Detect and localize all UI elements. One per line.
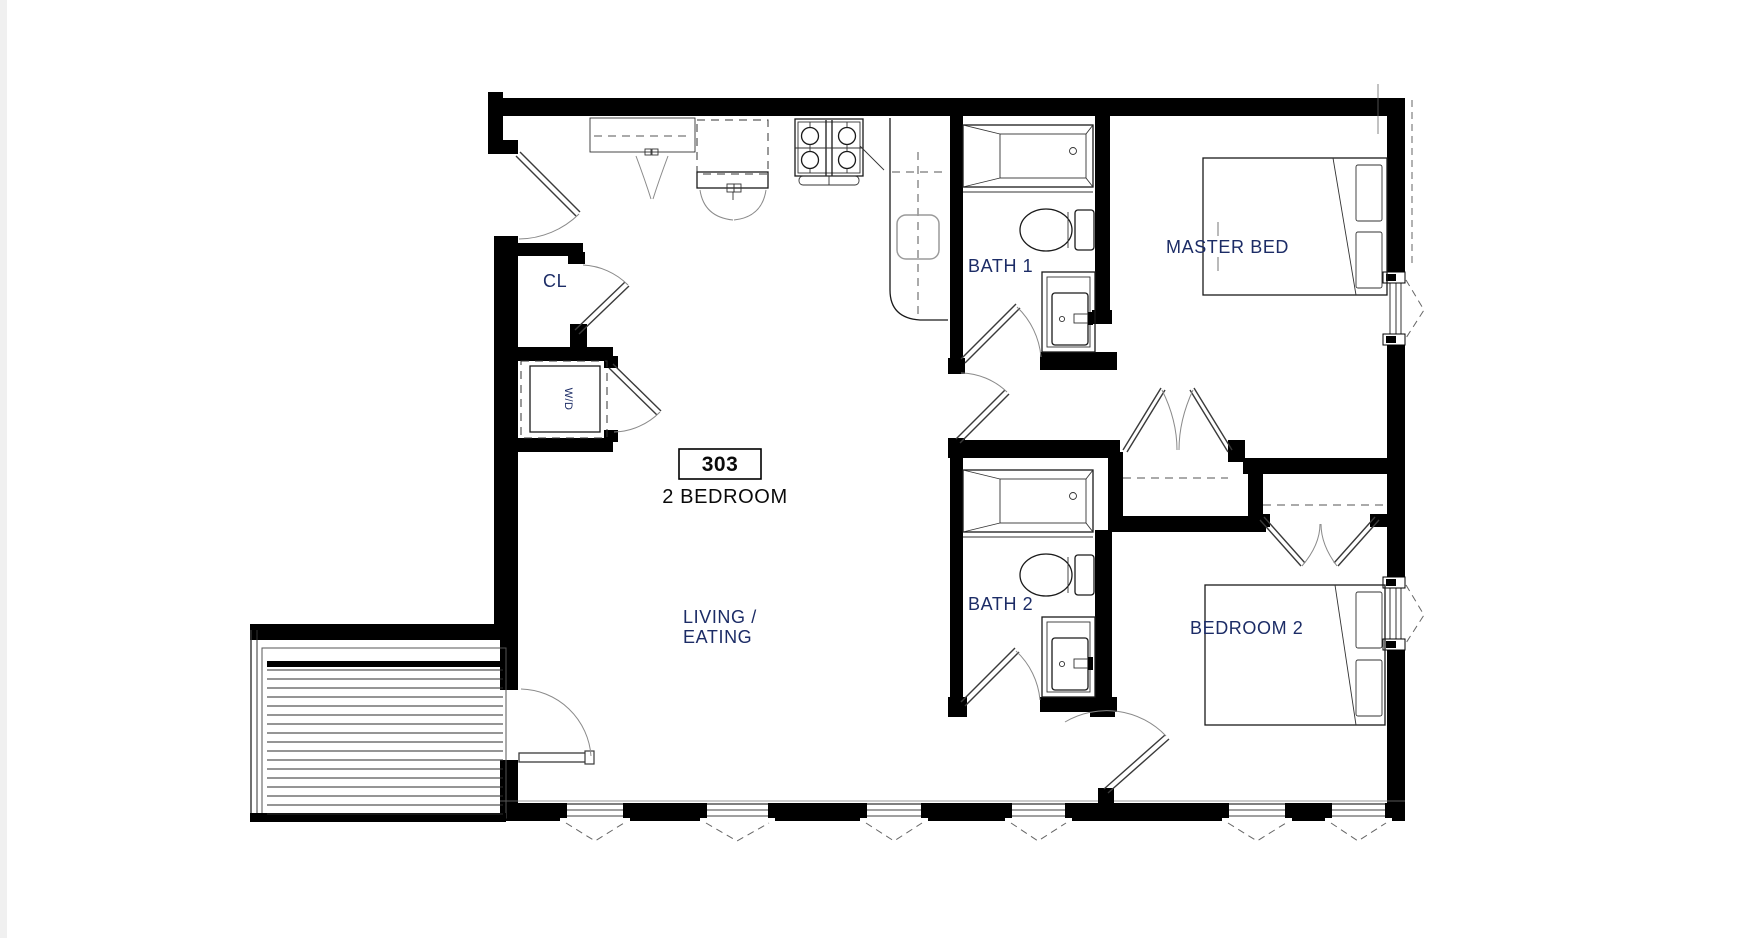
bedroom2-door bbox=[1065, 711, 1169, 793]
window-bottom-3 bbox=[860, 803, 928, 841]
window-swing-indicator bbox=[1331, 823, 1386, 841]
wall-bottom-seg bbox=[500, 803, 560, 821]
vanity-sink bbox=[1042, 617, 1095, 697]
burner bbox=[802, 128, 819, 145]
window-swing-indicator bbox=[1406, 280, 1424, 338]
window-bottom-4 bbox=[1005, 803, 1072, 841]
hall-door bbox=[956, 373, 1009, 443]
window-bottom-5 bbox=[1222, 803, 1292, 841]
refrigerator bbox=[697, 120, 768, 220]
wall-right-upper bbox=[1387, 116, 1405, 272]
unit-number: 303 bbox=[702, 453, 739, 476]
wall-bath2-north bbox=[948, 440, 1120, 458]
wall-bath2-west bbox=[950, 456, 963, 697]
wall-top bbox=[494, 98, 1405, 116]
jamb bbox=[568, 252, 585, 264]
pillow bbox=[1356, 165, 1382, 221]
stove bbox=[795, 119, 863, 185]
dishwasher-swing bbox=[653, 156, 668, 199]
window-swing-indicator bbox=[1406, 585, 1424, 643]
wall-bedroom2-west bbox=[1095, 530, 1112, 697]
room-label-living-line2: EATING bbox=[683, 627, 752, 647]
window-bottom-1 bbox=[560, 803, 630, 841]
wall-bath2-south bbox=[1040, 697, 1117, 712]
toilet bbox=[1020, 554, 1094, 596]
room-label-master: MASTER BED bbox=[1166, 237, 1289, 257]
wall-entry-step bbox=[488, 92, 503, 146]
wall-closet-master-south bbox=[1108, 516, 1266, 532]
room-label-cl: CL bbox=[543, 271, 567, 291]
room-label-bath2: BATH 2 bbox=[968, 594, 1033, 614]
master-bed bbox=[1203, 158, 1387, 295]
burner bbox=[802, 152, 819, 169]
unit-label: 303 2 BEDROOM bbox=[662, 449, 787, 508]
kitchen-counter-end bbox=[890, 290, 948, 320]
wall-entry-stub bbox=[488, 140, 518, 154]
wall-bottom-seg bbox=[928, 803, 1005, 821]
dishwasher-swing bbox=[636, 156, 651, 199]
bedroom2-closet-doors bbox=[1260, 505, 1385, 566]
balcony bbox=[250, 630, 506, 822]
kitchen bbox=[590, 118, 948, 320]
room-label-bedroom2: BEDROOM 2 bbox=[1190, 618, 1303, 638]
window-swing-indicator bbox=[1011, 823, 1066, 841]
wall-right-middle bbox=[1387, 345, 1405, 577]
wall-wd-south bbox=[503, 438, 613, 452]
window-bedroom2 bbox=[1383, 577, 1424, 650]
pillow bbox=[1356, 232, 1382, 288]
wall-balcony-north bbox=[250, 624, 500, 640]
bottom-wall bbox=[500, 801, 1405, 841]
wall-closet-bedroom2-north bbox=[1243, 458, 1387, 474]
wall-bottom-corner bbox=[1392, 803, 1405, 821]
window-swing-indicator bbox=[866, 823, 922, 841]
jamb bbox=[948, 697, 967, 717]
jamb bbox=[1228, 440, 1245, 462]
wall-bath1-south bbox=[1040, 352, 1117, 370]
bath1-fixtures bbox=[963, 125, 1095, 352]
bedroom2-bed bbox=[1205, 585, 1385, 725]
wall-bottom-seg bbox=[630, 803, 700, 821]
bathtub bbox=[963, 470, 1093, 537]
pillow bbox=[1356, 660, 1382, 716]
burner bbox=[839, 128, 856, 145]
window-bottom-2 bbox=[700, 803, 775, 841]
toilet bbox=[1020, 209, 1094, 251]
interior-walls bbox=[503, 116, 1387, 806]
entry-door bbox=[516, 152, 580, 239]
room-label-wd: W/D bbox=[562, 388, 574, 411]
wall-bottom-seg bbox=[1072, 803, 1222, 821]
deck-edge bbox=[267, 661, 503, 667]
pillow bbox=[1356, 592, 1382, 648]
unit-type: 2 BEDROOM bbox=[662, 486, 787, 508]
balcony-door bbox=[519, 689, 594, 764]
room-label-living-line1: LIVING / bbox=[683, 607, 757, 627]
wall-bottom-seg bbox=[775, 803, 860, 821]
bed-fold-line bbox=[1335, 585, 1356, 725]
wall-bottom-seg bbox=[1292, 803, 1325, 821]
jamb bbox=[948, 358, 965, 374]
burner bbox=[839, 152, 856, 169]
floor-plan-drawing: 303 2 BEDROOM BATH 1 BATH 2 MASTER BED B… bbox=[0, 0, 1760, 938]
wall-bath1-west bbox=[950, 116, 963, 358]
kitchen-counter-left bbox=[590, 118, 695, 152]
window-master bbox=[1383, 272, 1424, 345]
room-label-bath1: BATH 1 bbox=[968, 256, 1033, 276]
window-swing-indicator bbox=[706, 823, 769, 841]
window-swing-indicator bbox=[566, 823, 624, 841]
bath2-fixtures bbox=[963, 470, 1095, 697]
deck-hatch bbox=[267, 667, 503, 815]
bath2-door bbox=[961, 648, 1040, 706]
cl-door bbox=[575, 265, 629, 334]
bath1-door bbox=[961, 304, 1041, 363]
wall-wd-north bbox=[503, 347, 613, 361]
window-swing-indicator bbox=[1228, 823, 1286, 841]
window-bottom-6 bbox=[1325, 803, 1392, 841]
vanity-sink bbox=[1042, 272, 1095, 352]
master-closet-doors bbox=[1123, 388, 1232, 478]
wd-door bbox=[609, 364, 661, 432]
wall-bath1-east bbox=[1095, 116, 1110, 310]
floor-plan-page: 303 2 BEDROOM BATH 1 BATH 2 MASTER BED B… bbox=[0, 0, 1760, 938]
bed-fold-line bbox=[1333, 158, 1356, 295]
wall-right-lower bbox=[1387, 650, 1405, 803]
bathtub bbox=[963, 125, 1093, 192]
